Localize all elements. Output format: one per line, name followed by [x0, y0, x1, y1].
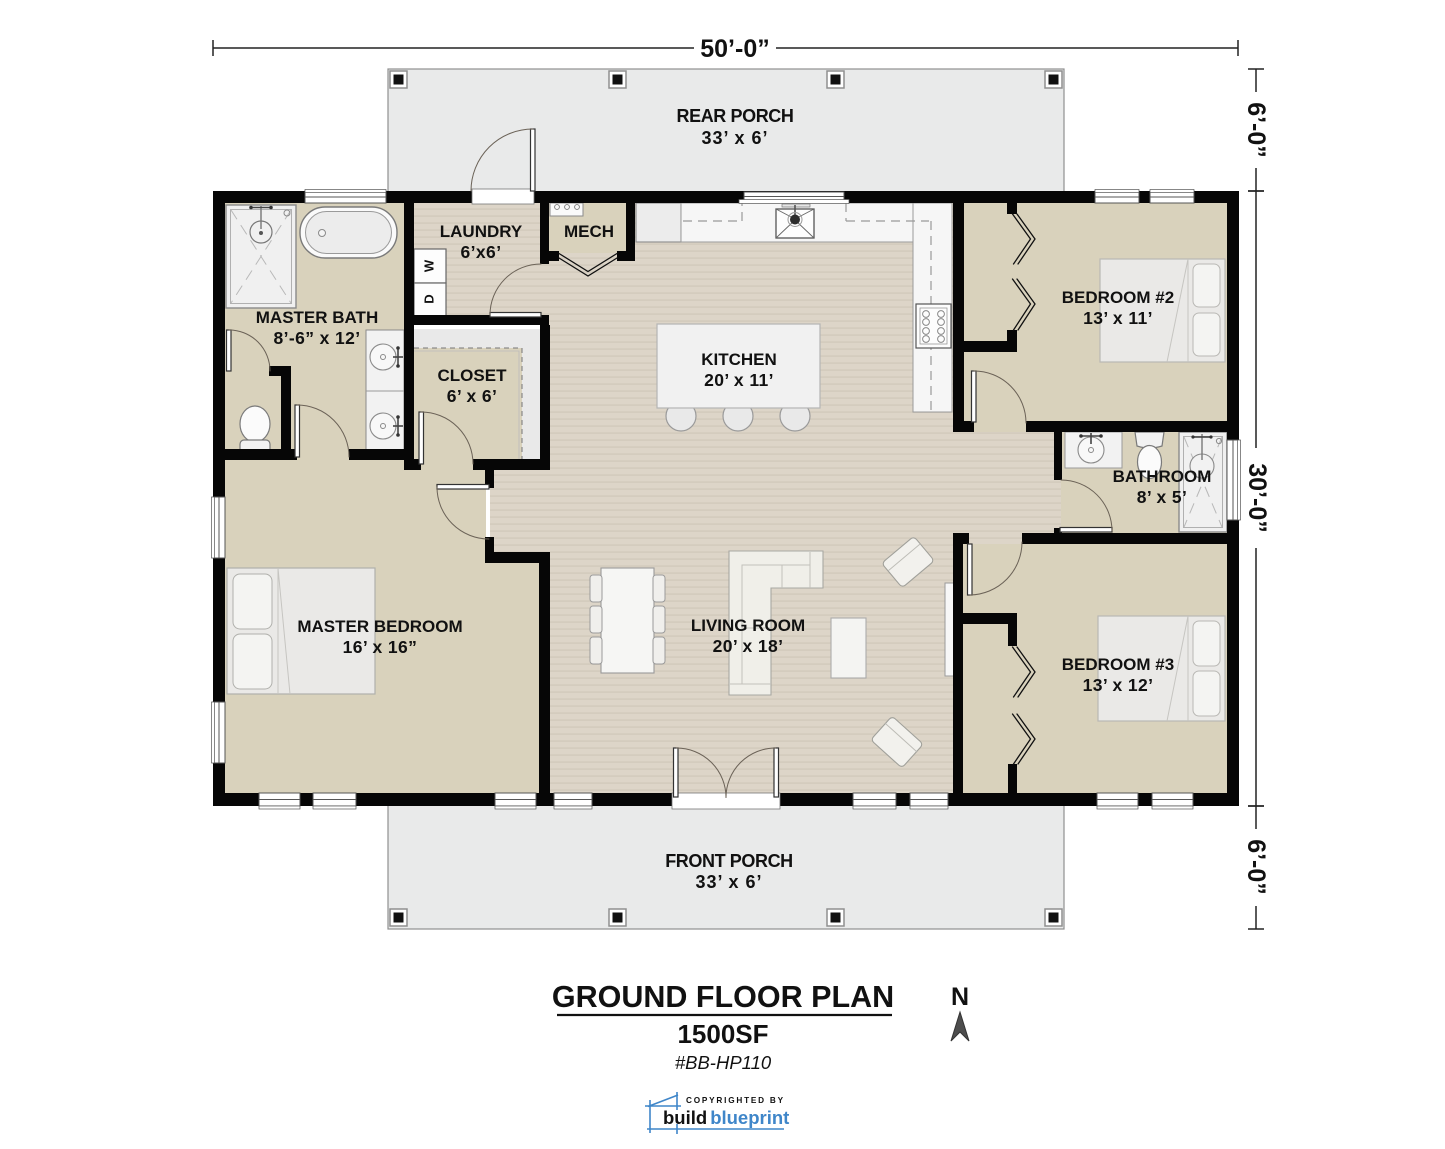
svg-text:D: D	[422, 294, 437, 303]
svg-text:MASTER BATH: MASTER BATH	[256, 308, 378, 327]
svg-text:CLOSET: CLOSET	[438, 366, 508, 385]
svg-text:REAR PORCH: REAR PORCH	[676, 106, 793, 126]
svg-text:MASTER BEDROOM: MASTER BEDROOM	[297, 617, 462, 636]
svg-text:GROUND FLOOR PLAN: GROUND FLOOR PLAN	[552, 980, 894, 1014]
svg-text:20’ x 18’: 20’ x 18’	[713, 636, 784, 656]
svg-text:33’ x 6’: 33’ x 6’	[695, 872, 762, 892]
svg-text:13’ x 11’: 13’ x 11’	[1083, 308, 1153, 328]
svg-text:FRONT PORCH: FRONT PORCH	[665, 851, 793, 871]
svg-text:LAUNDRY: LAUNDRY	[440, 222, 523, 241]
svg-text:20’ x 11’: 20’ x 11’	[704, 370, 774, 390]
svg-text:16’ x 16”: 16’ x 16”	[343, 637, 418, 657]
svg-text:33’ x 6’: 33’ x 6’	[701, 128, 768, 148]
svg-text:LIVING ROOM: LIVING ROOM	[691, 616, 805, 635]
svg-text:N: N	[951, 983, 969, 1011]
svg-text:6’-0”: 6’-0”	[1242, 839, 1270, 895]
svg-text:50’-0”: 50’-0”	[700, 35, 769, 63]
svg-text:30’-0”: 30’-0”	[1243, 463, 1271, 532]
svg-text:W: W	[422, 259, 437, 272]
svg-text:6’ x 6’: 6’ x 6’	[447, 386, 497, 406]
svg-text:13’ x 12’: 13’ x 12’	[1083, 675, 1154, 695]
svg-text:MECH: MECH	[564, 222, 614, 241]
svg-text:6’x6’: 6’x6’	[461, 242, 502, 262]
svg-text:6’-0”: 6’-0”	[1242, 102, 1270, 158]
svg-text:BEDROOM #2: BEDROOM #2	[1062, 288, 1174, 307]
svg-text:COPYRIGHTED BY: COPYRIGHTED BY	[686, 1096, 785, 1105]
svg-text:8’-6” x 12’: 8’-6” x 12’	[273, 328, 360, 348]
svg-text:buildblueprint: buildblueprint	[663, 1107, 789, 1128]
svg-text:1500SF: 1500SF	[677, 1019, 768, 1049]
svg-text:KITCHEN: KITCHEN	[701, 350, 777, 369]
svg-text:#BB-HP110: #BB-HP110	[675, 1052, 772, 1073]
svg-text:BATHROOM: BATHROOM	[1113, 467, 1212, 486]
svg-text:BEDROOM #3: BEDROOM #3	[1062, 655, 1174, 674]
svg-text:8’ x 5’: 8’ x 5’	[1137, 487, 1187, 507]
